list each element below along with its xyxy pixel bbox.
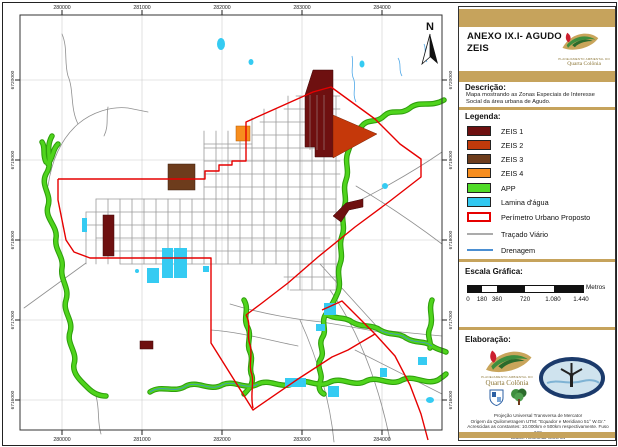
zeis3-area — [168, 164, 195, 190]
street-network — [86, 96, 342, 290]
scale-tick: 180 — [477, 296, 487, 303]
svg-text:6717000: 6717000 — [10, 310, 16, 329]
zeis4-area — [236, 126, 250, 141]
scale-tick: 1.080 — [545, 296, 560, 303]
drainage-line-swatch — [467, 249, 493, 251]
crest-emblem — [489, 389, 504, 411]
scale-heading: Escala Gráfica: — [465, 267, 523, 276]
scale-bar — [467, 285, 584, 293]
zeis4-swatch — [467, 168, 491, 178]
logo-name: Quarta Colônia — [558, 61, 610, 67]
tree-emblem — [509, 387, 529, 411]
svg-text:280000: 280000 — [53, 5, 70, 11]
zeis2-swatch — [467, 140, 491, 150]
svg-text:284000: 284000 — [373, 5, 390, 11]
svg-text:6719000: 6719000 — [10, 150, 16, 169]
zeis1-small — [140, 341, 153, 349]
divider-band — [459, 71, 615, 82]
svg-text:282000: 282000 — [213, 437, 230, 443]
scale-tick: 0 — [466, 296, 469, 303]
scale-unit: Metros — [586, 284, 605, 291]
svg-text:6716000: 6716000 — [448, 390, 454, 409]
app-swatch — [467, 183, 491, 193]
page-title: ANEXO IX.I- AGUDO ZEIS — [467, 31, 567, 55]
north-arrow-icon: N — [422, 21, 438, 64]
title-line-2: ZEIS — [467, 43, 567, 55]
water-swatch — [467, 197, 491, 207]
svg-text:283000: 283000 — [293, 5, 310, 11]
svg-text:6720000: 6720000 — [10, 70, 16, 89]
svg-text:280000: 280000 — [53, 437, 70, 443]
zeis3-swatch — [467, 154, 491, 164]
map-sheet: { "header": { "title_line1": "ANEXO IX.I… — [0, 0, 618, 447]
rule-2 — [459, 259, 615, 262]
scale-tick: 720 — [520, 296, 530, 303]
water-bodies — [82, 38, 434, 403]
rule-1 — [459, 107, 615, 110]
zeis1-area-south — [333, 199, 363, 222]
description-heading: Descrição: — [465, 83, 506, 92]
svg-text:281000: 281000 — [133, 437, 150, 443]
elaboration-heading: Elaboração: — [465, 335, 511, 344]
svg-text:6718000: 6718000 — [10, 230, 16, 249]
svg-text:283000: 283000 — [293, 437, 310, 443]
zeis1-strip — [103, 215, 114, 256]
svg-text:284000: 284000 — [373, 437, 390, 443]
bottom-band — [459, 432, 615, 438]
svg-text:281000: 281000 — [133, 5, 150, 11]
svg-text:6717000: 6717000 — [448, 310, 454, 329]
info-panel: ANEXO IX.I- AGUDO ZEIS PLANEJAMENTO AMBI… — [458, 6, 616, 441]
scale-tick: 1.440 — [573, 296, 588, 303]
svg-text:6719000: 6719000 — [448, 150, 454, 169]
drainage-lines — [352, 44, 427, 102]
quarta-colonia-logo-large: PLANEJAMENTO AMBIENTAL DO Quarta Colônia — [475, 347, 539, 387]
top-band — [459, 9, 615, 27]
perimeter-swatch — [467, 212, 491, 222]
svg-text:6720000: 6720000 — [448, 70, 454, 89]
svg-text:N: N — [426, 21, 434, 33]
title-line-1: ANEXO IX.I- AGUDO — [467, 31, 567, 43]
oval-emblem-logo — [539, 357, 605, 404]
rule-3 — [459, 327, 615, 330]
svg-text:6716000: 6716000 — [10, 390, 16, 409]
svg-text:282000: 282000 — [213, 5, 230, 11]
road-line-swatch — [467, 233, 493, 235]
zeis1-swatch — [467, 126, 491, 136]
svg-text:6718000: 6718000 — [448, 230, 454, 249]
description-text: Mapa mostrando as Zonas Especiais de Int… — [466, 92, 612, 106]
scale-tick: 360 — [492, 296, 502, 303]
map-canvas[interactable]: 280000 281000 282000 283000 284000 28000… — [0, 0, 458, 447]
legend-heading: Legenda: — [465, 112, 501, 121]
zeis1-area-north — [305, 70, 333, 157]
quarta-colonia-logo: PLANEJAMENTO AMBIENTAL DO Quarta Colônia — [558, 30, 610, 67]
